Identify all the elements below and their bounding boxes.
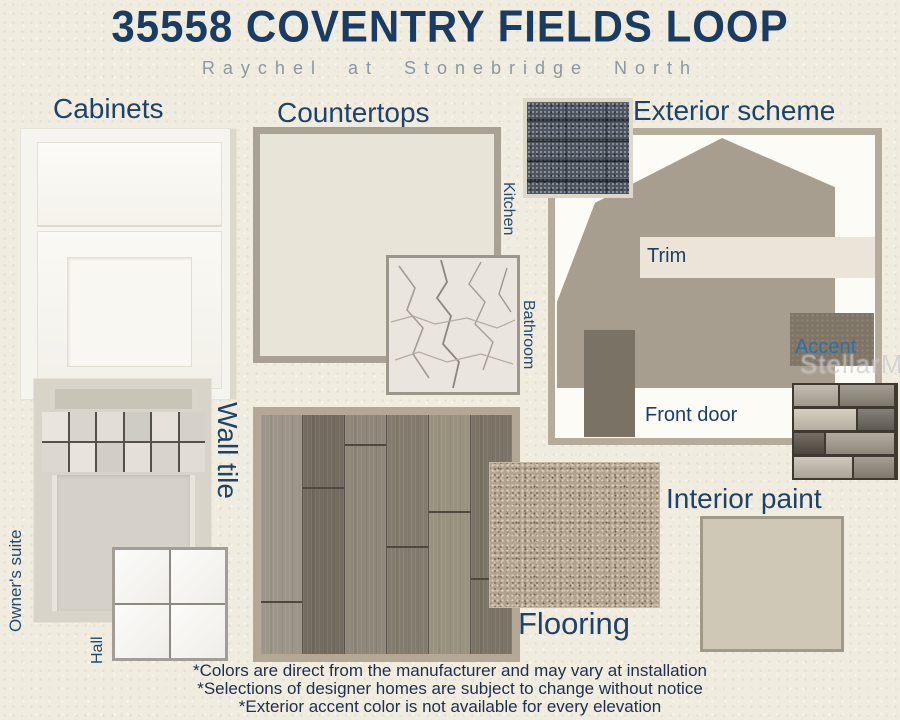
wood-plank bbox=[429, 415, 470, 654]
exterior-section-label: Exterior scheme bbox=[633, 95, 835, 127]
wall-tile-section-label: Wall tile bbox=[211, 402, 243, 499]
wood-plank bbox=[345, 415, 386, 654]
mosaic-tile bbox=[152, 412, 178, 441]
stone-block bbox=[794, 385, 838, 406]
cabinet-door-swatch bbox=[20, 128, 237, 400]
footnote-line: *Exterior accent color is not available … bbox=[0, 698, 900, 716]
flooring-section-label: Flooring bbox=[518, 606, 630, 642]
interior-paint-section-label: Interior paint bbox=[666, 483, 822, 515]
bathroom-label: Bathroom bbox=[519, 300, 537, 369]
mosaic-tile bbox=[70, 443, 96, 472]
stone-swatch bbox=[792, 383, 898, 480]
cabinets-section-label: Cabinets bbox=[53, 93, 164, 125]
wall-tile-mosaic-band bbox=[42, 412, 205, 472]
stone-block bbox=[794, 409, 856, 430]
front-door-swatch bbox=[584, 330, 635, 437]
wood-plank bbox=[387, 415, 428, 654]
wall-tile-liner bbox=[50, 389, 197, 409]
mosaic-tile bbox=[42, 443, 68, 472]
hall-tile-cell bbox=[115, 605, 169, 658]
wood-flooring-swatch bbox=[253, 407, 520, 662]
bathroom-countertop-swatch bbox=[386, 255, 520, 395]
stone-block bbox=[826, 433, 894, 454]
mosaic-tile bbox=[125, 412, 151, 441]
mosaic-tile bbox=[180, 412, 206, 441]
trim-label: Trim bbox=[647, 245, 686, 268]
marble-veins bbox=[389, 258, 517, 392]
footnote-line: *Colors are direct from the manufacturer… bbox=[0, 662, 900, 680]
stone-block bbox=[858, 409, 894, 430]
stone-block bbox=[854, 457, 894, 478]
carpet-swatch bbox=[489, 462, 660, 608]
stone-block bbox=[794, 433, 824, 454]
cabinet-door-front bbox=[37, 231, 222, 389]
hall-tile-cell bbox=[115, 550, 169, 603]
mosaic-tile bbox=[42, 412, 68, 441]
hall-tile-cell bbox=[171, 550, 225, 603]
cabinet-drawer-front bbox=[37, 142, 222, 227]
hall-label: Hall bbox=[89, 636, 107, 664]
mosaic-tile bbox=[70, 412, 96, 441]
roof-shingle-swatch bbox=[523, 98, 633, 198]
stone-block bbox=[794, 457, 852, 478]
footnote-line: *Selections of designer homes are subjec… bbox=[0, 680, 900, 698]
owners-suite-label: Owner's suite bbox=[6, 530, 26, 632]
mosaic-tile bbox=[97, 443, 123, 472]
mosaic-tile bbox=[97, 412, 123, 441]
stone-block bbox=[840, 385, 894, 406]
community-subtitle: Raychel at Stonebridge North bbox=[0, 58, 900, 79]
wood-plank bbox=[303, 415, 344, 654]
mosaic-tile bbox=[180, 443, 206, 472]
countertops-section-label: Countertops bbox=[277, 97, 430, 129]
kitchen-label: Kitchen bbox=[499, 182, 517, 235]
cabinet-door-panel bbox=[67, 257, 192, 367]
interior-paint-swatch bbox=[700, 516, 844, 652]
hall-tile-cell bbox=[171, 605, 225, 658]
stellar-mls-watermark: StellarMLS bbox=[800, 349, 900, 380]
hall-tile-swatch bbox=[112, 547, 228, 661]
front-door-label: Front door bbox=[645, 404, 737, 427]
mosaic-tile bbox=[125, 443, 151, 472]
footnotes: *Colors are direct from the manufacturer… bbox=[0, 662, 900, 716]
page-title: 35558 COVENTRY FIELDS LOOP bbox=[0, 2, 900, 52]
mosaic-tile bbox=[152, 443, 178, 472]
wood-plank bbox=[261, 415, 302, 654]
